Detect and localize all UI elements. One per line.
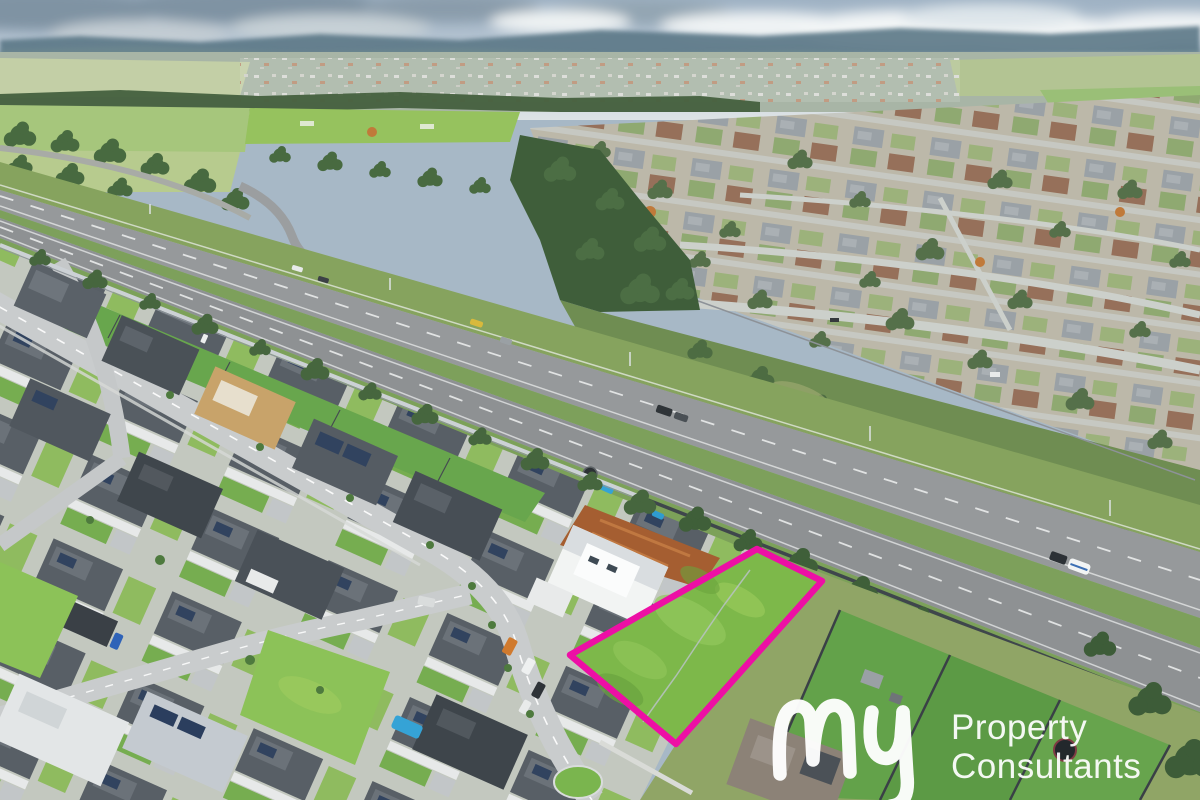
watermark-line1: Property xyxy=(951,708,1087,747)
aerial-photo: Property Consultants xyxy=(0,0,1200,800)
traffic-island xyxy=(554,766,602,798)
sports-field xyxy=(245,108,520,144)
watermark-line2: Consultants xyxy=(951,747,1141,786)
field-marking xyxy=(420,124,434,129)
green-field-left xyxy=(0,105,250,154)
field-marking xyxy=(300,121,314,126)
